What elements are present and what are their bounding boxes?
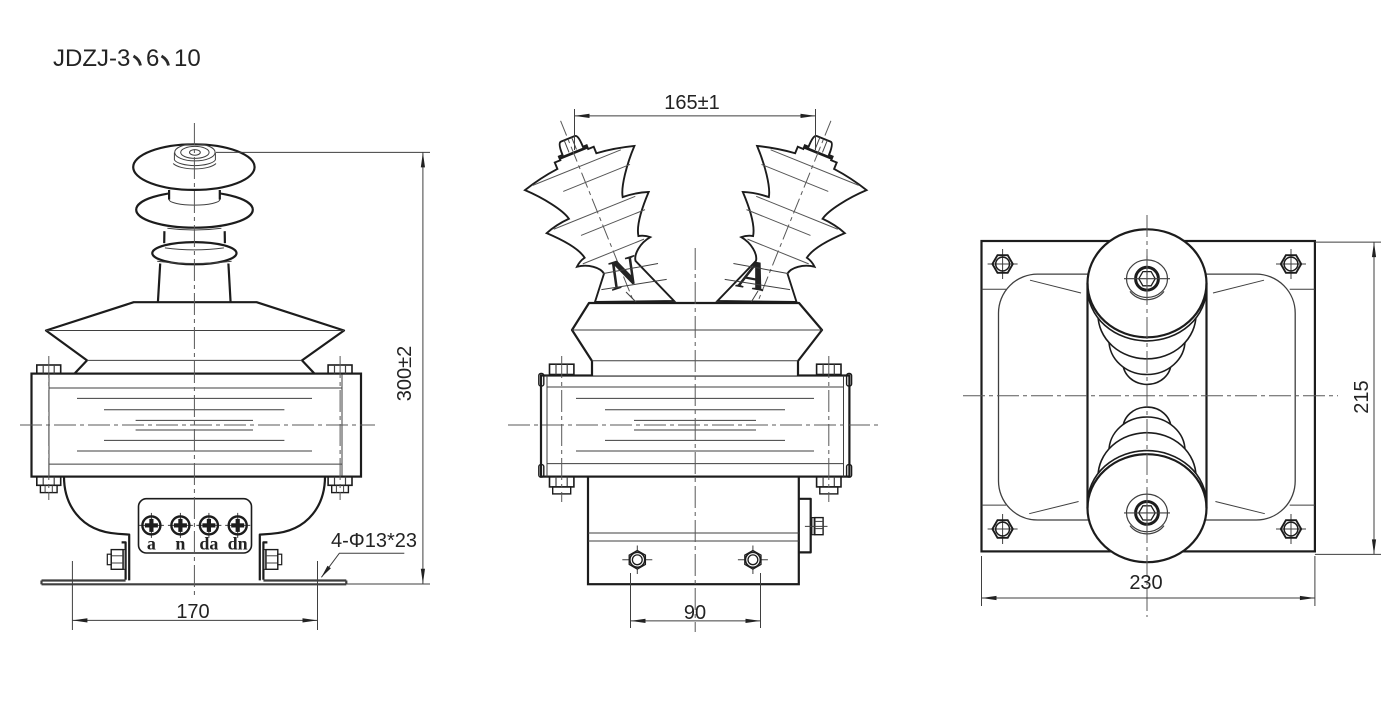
svg-text:10: 10: [174, 45, 201, 72]
svg-text:da: da: [199, 534, 218, 554]
svg-text:dn: dn: [228, 534, 248, 554]
svg-text:90: 90: [684, 602, 706, 624]
svg-text:JDZJ-3: JDZJ-3: [53, 45, 130, 72]
svg-text:n: n: [175, 534, 185, 554]
svg-text:a: a: [147, 534, 156, 554]
svg-text:4-Φ13*23: 4-Φ13*23: [331, 530, 417, 552]
svg-text:6: 6: [146, 45, 159, 72]
svg-text:215: 215: [1351, 380, 1373, 413]
svg-text:230: 230: [1129, 572, 1162, 594]
svg-text:300±2: 300±2: [394, 346, 416, 401]
svg-text:165±1: 165±1: [664, 92, 719, 114]
svg-text:170: 170: [176, 601, 209, 623]
